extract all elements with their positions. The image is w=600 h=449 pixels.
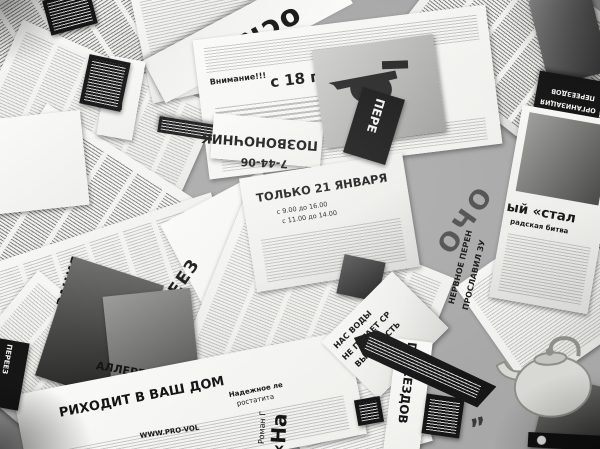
reversed-text-lines — [47, 0, 93, 31]
dark-banner — [528, 432, 600, 449]
headline-pere: ПЕРЕ — [364, 97, 386, 134]
reversed-text-lines — [426, 398, 460, 434]
headline-tolko: ТОЛЬКО 21 ЯНВАРЯ — [255, 171, 388, 204]
phone-number: 7-44-06 — [240, 156, 288, 170]
headline-na: «На — [268, 413, 291, 449]
teapot-image — [486, 320, 600, 435]
headline-vnimanie: Внимание!!! — [209, 72, 266, 87]
newspaper-scrap: ый «стал радская битва — [489, 105, 600, 314]
reversed-text-lines — [359, 401, 380, 422]
newspaper-scrap — [0, 110, 90, 215]
reversed-text-lines — [84, 59, 126, 107]
coupon-box — [421, 394, 464, 439]
photo-fragment — [516, 112, 600, 205]
headline-pereez-edge: ПЕРЕЕЗ — [0, 343, 12, 374]
text-columns — [498, 233, 591, 305]
dark-clipping — [354, 396, 384, 426]
headline-prihodit: РИХОДИТ В ВАШ ДОМ — [58, 375, 225, 420]
newspaper-collage: осква кварт Внимание!!! с 18 по 21 январ… — [0, 0, 600, 449]
